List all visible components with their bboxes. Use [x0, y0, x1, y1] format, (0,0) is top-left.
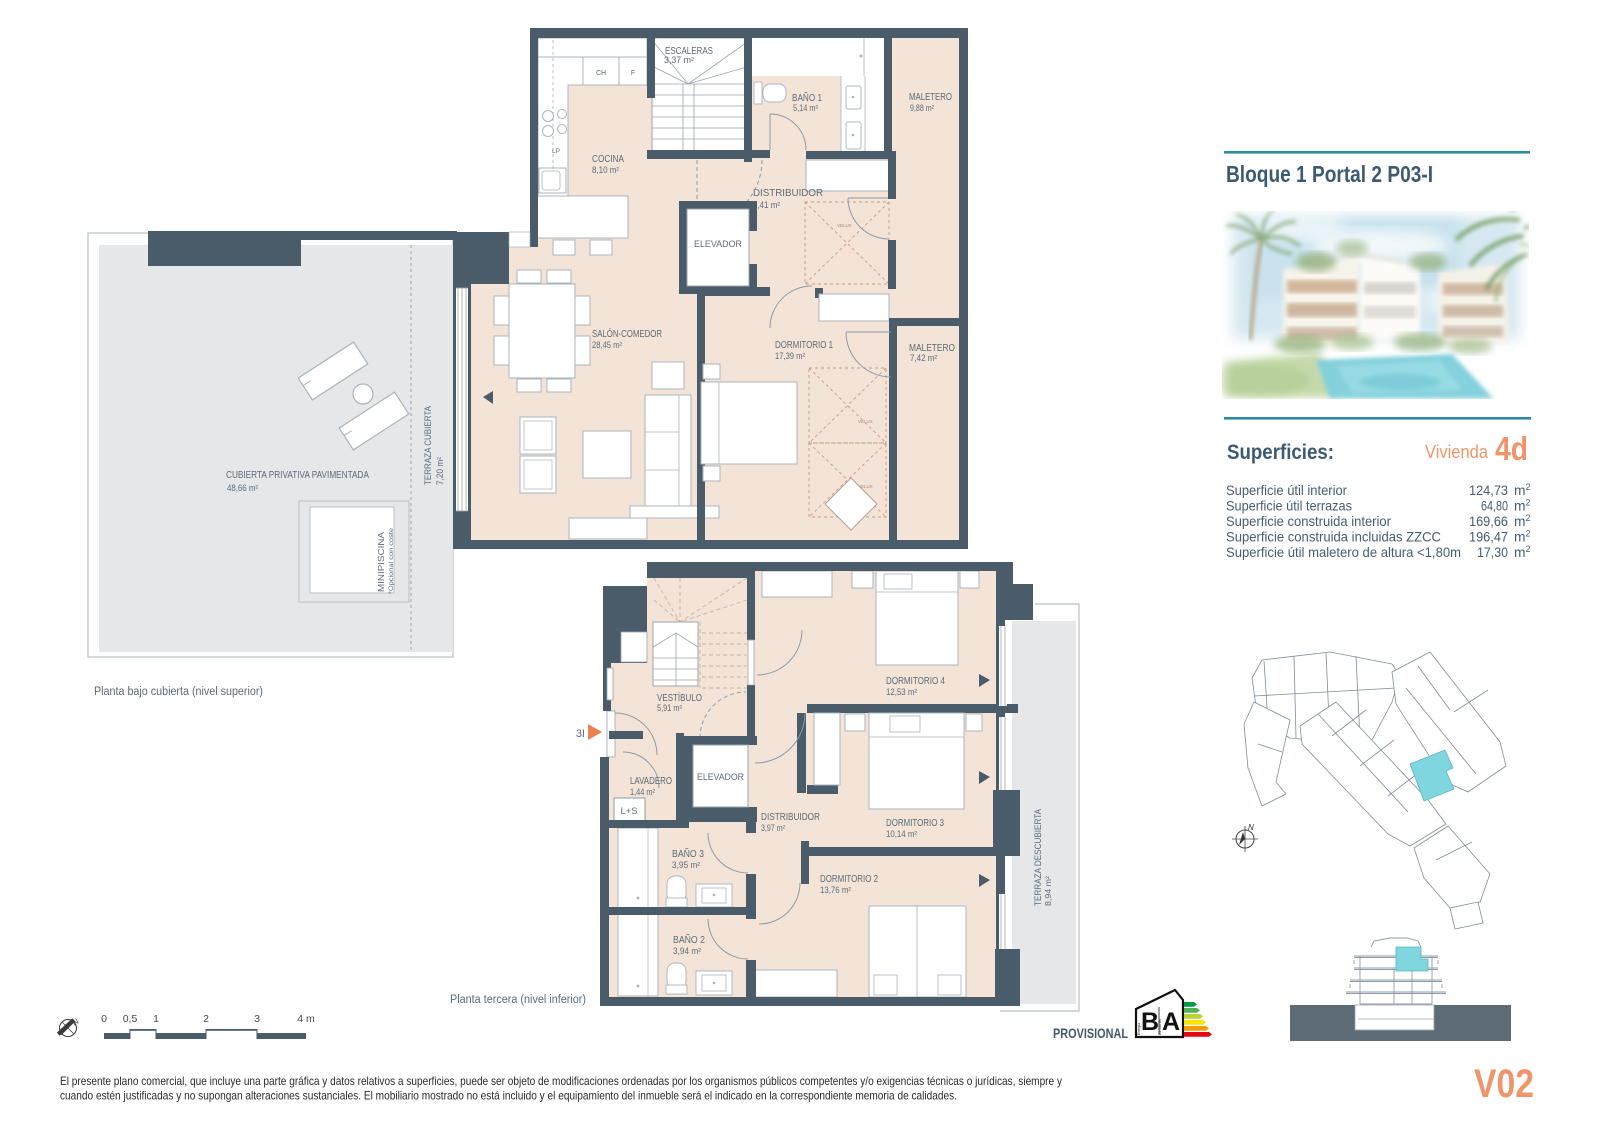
svg-text:L+S: L+S [621, 806, 638, 817]
svg-text:Superficie útil maletero de al: Superficie útil maletero de altura <1,80… [1226, 545, 1461, 560]
svg-text:5,14 m²: 5,14 m² [793, 103, 818, 113]
svg-text:LAVADERO: LAVADERO [630, 776, 672, 787]
svg-text:7,41 m²: 7,41 m² [753, 200, 780, 210]
svg-text:m2: m2 [1514, 482, 1531, 498]
svg-text:2: 2 [203, 1013, 209, 1025]
svg-text:0,5: 0,5 [123, 1013, 138, 1025]
svg-text:*Opcional con coste: *Opcional con coste [388, 528, 395, 594]
svg-text:12,53 m²: 12,53 m² [886, 687, 917, 697]
svg-text:169,66: 169,66 [1469, 514, 1508, 529]
svg-text:124,73: 124,73 [1469, 483, 1508, 498]
svg-text:PROVISIONAL: PROVISIONAL [1053, 1025, 1128, 1041]
svg-text:F: F [631, 70, 635, 77]
svg-text:m2: m2 [1514, 529, 1531, 545]
svg-text:17,30: 17,30 [1477, 545, 1508, 560]
svg-text:64,80: 64,80 [1481, 499, 1508, 514]
svg-text:196,47: 196,47 [1469, 530, 1508, 545]
svg-text:3,97 m²: 3,97 m² [761, 823, 785, 833]
svg-text:Vivienda: Vivienda [1425, 442, 1489, 462]
svg-text:DORMITORIO 3: DORMITORIO 3 [886, 818, 944, 829]
svg-text:VELUX: VELUX [837, 223, 852, 228]
svg-text:cuando estén justificadas y no: cuando estén justificadas y no supongan … [60, 1089, 957, 1103]
svg-text:10,14 m²: 10,14 m² [886, 829, 917, 839]
svg-text:8,10 m²: 8,10 m² [592, 165, 619, 175]
svg-text:48,66 m²: 48,66 m² [227, 483, 258, 493]
svg-text:Superficies:: Superficies: [1227, 441, 1334, 464]
svg-text:COCINA: COCINA [592, 154, 624, 165]
svg-text:LP: LP [552, 148, 560, 155]
svg-text:El presente plano comercial, q: El presente plano comercial, que incluye… [60, 1074, 1062, 1088]
svg-text:DORMITORIO 4: DORMITORIO 4 [886, 676, 945, 687]
svg-text:Bloque 1 Portal 2 P03-I: Bloque 1 Portal 2 P03-I [1226, 161, 1433, 187]
svg-text:DISTRIBUIDOR: DISTRIBUIDOR [761, 812, 820, 823]
svg-text:Superficie construida interior: Superficie construida interior [1226, 514, 1391, 529]
svg-text:N: N [71, 1017, 81, 1028]
svg-text:Energía: Energía [1137, 1023, 1141, 1035]
svg-text:m2: m2 [1514, 544, 1531, 560]
svg-text:Planta bajo cubierta (nivel su: Planta bajo cubierta (nivel superior) [94, 686, 263, 698]
svg-text:ELEVADOR: ELEVADOR [697, 772, 744, 783]
svg-text:DORMITORIO 2: DORMITORIO 2 [820, 874, 878, 885]
svg-text:1,44 m²: 1,44 m² [630, 787, 655, 797]
svg-text:3,95 m²: 3,95 m² [672, 860, 700, 870]
svg-text:CUBIERTA PRIVATIVA PAVIMENTADA: CUBIERTA PRIVATIVA PAVIMENTADA [226, 470, 369, 481]
svg-text:BAÑO 2: BAÑO 2 [673, 933, 705, 946]
svg-text:VELUX: VELUX [858, 419, 873, 424]
svg-text:28,45 m²: 28,45 m² [592, 340, 622, 350]
svg-text:ELEVADOR: ELEVADOR [694, 239, 742, 250]
svg-text:7,42 m²: 7,42 m² [910, 353, 937, 363]
svg-text:9,88 m²: 9,88 m² [910, 103, 934, 113]
svg-text:DORMITORIO 1: DORMITORIO 1 [775, 340, 833, 351]
svg-text:4 m: 4 m [297, 1013, 315, 1025]
svg-text:5,91 m²: 5,91 m² [657, 703, 682, 713]
svg-text:3I: 3I [576, 728, 585, 740]
svg-text:Superficie útil interior: Superficie útil interior [1226, 483, 1347, 498]
svg-text:13,76 m²: 13,76 m² [820, 885, 851, 895]
svg-text:DISTRIBUIDOR: DISTRIBUIDOR [753, 188, 823, 199]
svg-text:8,94 m²: 8,94 m² [1044, 876, 1053, 906]
svg-text:B: B [1141, 1008, 1159, 1036]
svg-text:7,20 m²: 7,20 m² [435, 457, 445, 485]
svg-text:m2: m2 [1514, 498, 1531, 514]
svg-text:MALETERO: MALETERO [909, 92, 952, 103]
svg-text:Superficie útil terrazas: Superficie útil terrazas [1226, 499, 1352, 514]
svg-text:N: N [1248, 823, 1254, 832]
svg-text:3,94 m²: 3,94 m² [673, 946, 701, 956]
svg-text:Superficie construida incluida: Superficie construida incluidas ZZCC [1226, 530, 1441, 545]
svg-text:BAÑO 3: BAÑO 3 [672, 847, 704, 860]
svg-text:Emisiones: Emisiones [1158, 1019, 1162, 1035]
svg-text:TERRAZA CUBIERTA: TERRAZA CUBIERTA [423, 405, 434, 485]
svg-text:MINIPISCINA: MINIPISCINA [377, 531, 386, 592]
svg-text:0: 0 [101, 1013, 107, 1025]
svg-text:4d: 4d [1495, 430, 1528, 467]
svg-text:m2: m2 [1514, 513, 1531, 529]
svg-text:A: A [1162, 1008, 1180, 1036]
svg-text:17,39 m²: 17,39 m² [775, 351, 805, 361]
svg-text:V02: V02 [1474, 1062, 1534, 1106]
svg-text:1: 1 [153, 1013, 159, 1025]
svg-text:SALÓN-COMEDOR: SALÓN-COMEDOR [592, 327, 662, 340]
svg-text:3,37 m²: 3,37 m² [664, 55, 694, 65]
svg-text:Planta tercera (nivel inferior: Planta tercera (nivel inferior) [450, 994, 586, 1006]
svg-text:3: 3 [254, 1013, 260, 1025]
svg-text:TERRAZA DESCUBIERTA: TERRAZA DESCUBIERTA [1033, 809, 1043, 906]
svg-text:CH: CH [596, 70, 606, 77]
